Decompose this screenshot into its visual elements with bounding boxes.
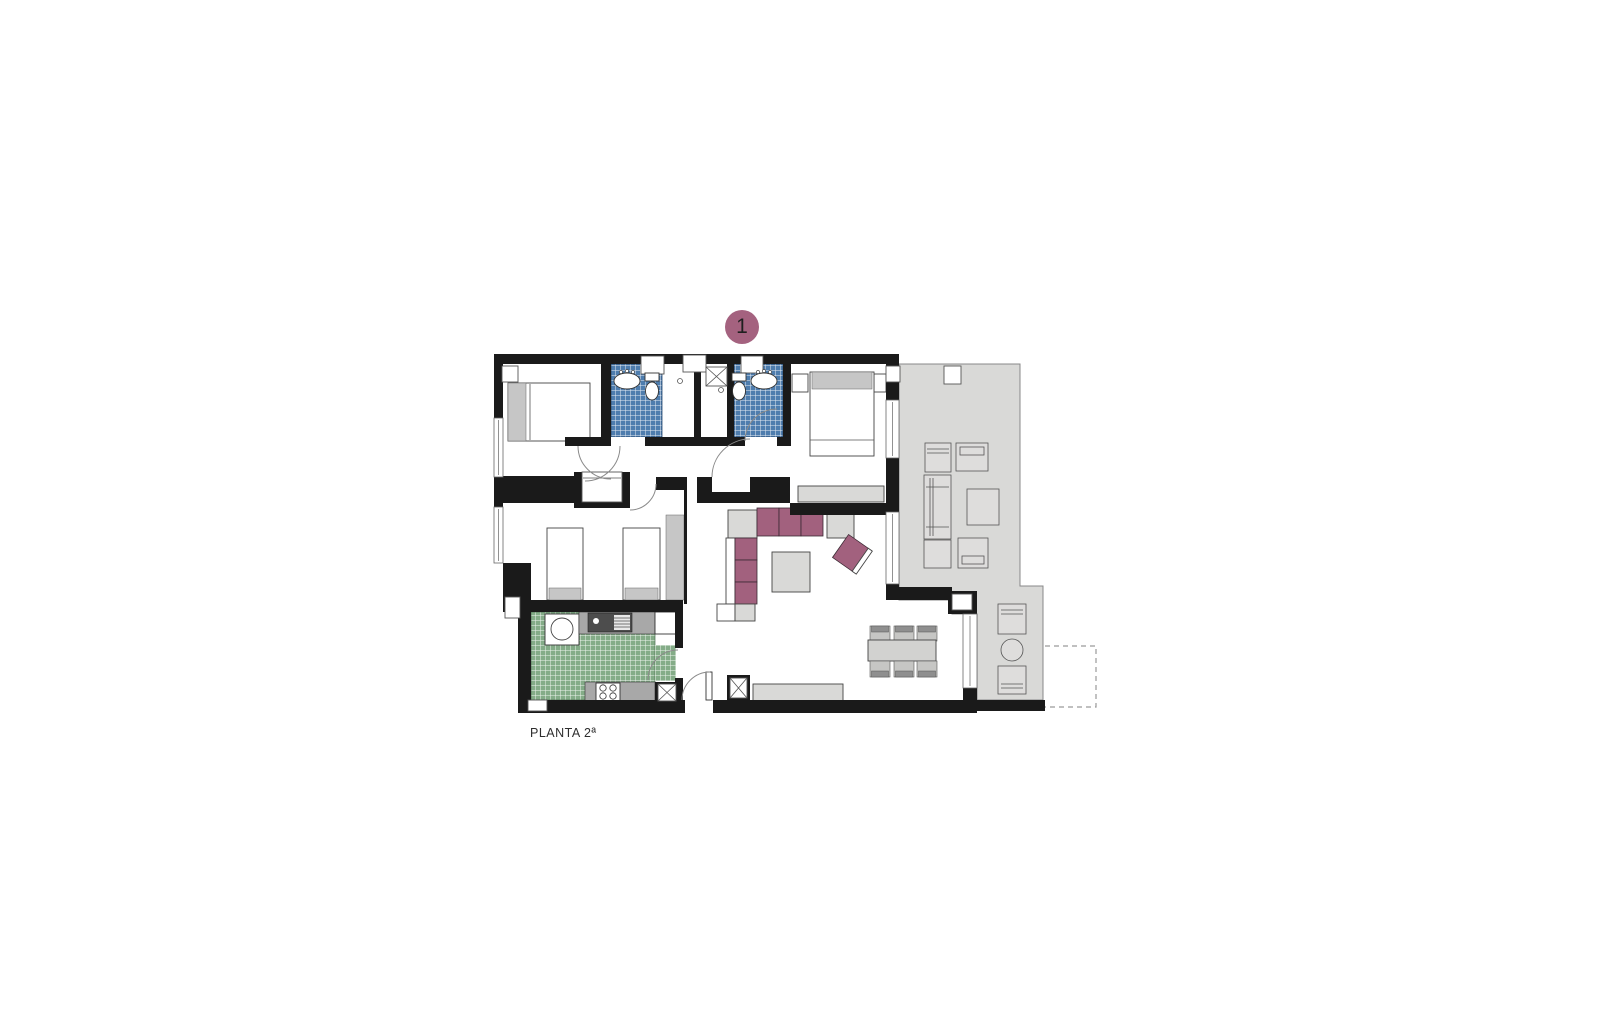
window [963, 614, 977, 688]
dining-chair [917, 626, 937, 641]
terrace-lounge-chair [998, 604, 1026, 634]
dresser [798, 486, 884, 502]
floor-label: PLANTA 2ª [530, 726, 597, 740]
terrace-sofa [924, 475, 951, 539]
sliding-door [886, 512, 899, 584]
bed-foot [549, 588, 581, 600]
dining-table [868, 640, 936, 661]
window [886, 400, 899, 458]
accent-armchair [833, 535, 873, 575]
dining-chair [917, 661, 937, 677]
terrace-table [967, 489, 999, 525]
sofa-seat [757, 508, 779, 536]
window [494, 507, 503, 563]
sofa-armrest [735, 604, 755, 621]
dining-area [868, 626, 937, 677]
toilet-icon [732, 373, 746, 400]
sofa-seat [735, 582, 757, 604]
dining-chair [870, 661, 890, 677]
terrace-armchair [956, 443, 988, 471]
toilet-icon [645, 373, 659, 400]
sofa-armrest [728, 510, 757, 538]
nightstand [792, 374, 808, 392]
sideboard [753, 684, 843, 701]
shower-drain-icon [678, 379, 683, 384]
entrance-door [682, 672, 712, 700]
unit-number: 1 [736, 315, 748, 339]
bed-foot [625, 588, 658, 600]
terrace-armchair [925, 443, 951, 472]
dashed-outline [1045, 646, 1096, 707]
terrace-pillar [944, 366, 961, 384]
unit-number-badge: 1 [725, 310, 759, 344]
shaft-x-box [706, 367, 727, 386]
floor-plan [0, 0, 1600, 1024]
bed-headboard [508, 383, 526, 441]
terrace-armchair [958, 538, 988, 568]
bed-headboard [812, 372, 872, 389]
dining-chair [894, 626, 914, 641]
window [494, 418, 503, 477]
terrace-lounge-chair [998, 666, 1026, 694]
dining-chair [894, 661, 914, 677]
wardrobe [666, 515, 684, 600]
stove [596, 683, 620, 701]
shower-drain-icon [719, 388, 724, 393]
bedroom-2 [547, 515, 684, 600]
bedroom-1 [508, 383, 590, 441]
sofa-seat [735, 538, 757, 560]
sofa-back [726, 538, 735, 604]
shaft-x-box [730, 678, 747, 698]
sofa-corner [717, 604, 735, 621]
terrace-armchair [924, 540, 951, 568]
sofa-seat [735, 560, 757, 582]
living-room [717, 508, 872, 701]
dining-chair [870, 626, 890, 641]
shaft-x-box [658, 684, 676, 701]
master-bedroom [792, 372, 886, 502]
floor-plan-page: 1 PLANTA 2ª [0, 0, 1600, 1024]
armchair [827, 512, 854, 538]
fridge [655, 612, 676, 634]
nightstand [874, 374, 886, 392]
terrace-round-table [1001, 639, 1023, 661]
coffee-table [772, 552, 810, 592]
